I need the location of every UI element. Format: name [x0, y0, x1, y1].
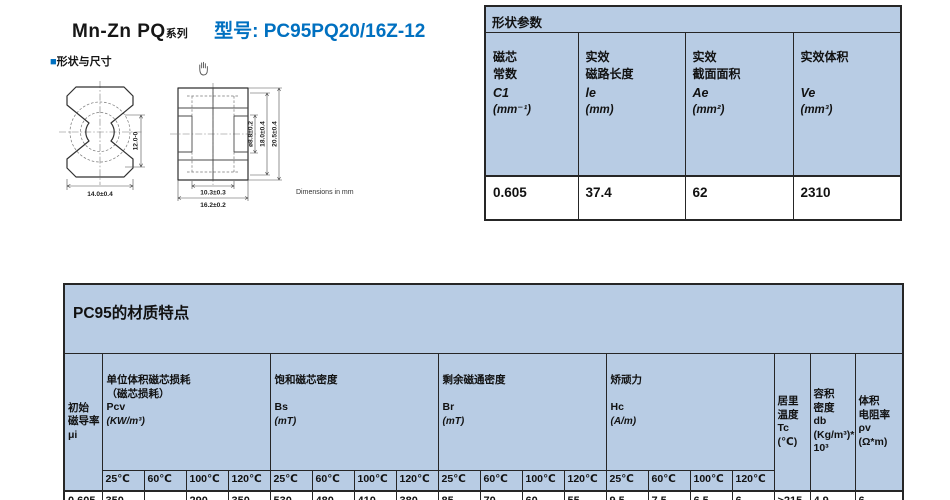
value-cell-ve: 2310 [793, 176, 901, 220]
temp-header-cell: 120℃ [396, 471, 438, 492]
material-characteristics-table: PC95的材质特点 初始 磁导率 μi 单位体积磁芯损耗 （磁芯损耗） Pcv … [63, 283, 904, 500]
table-row: 0.605 37.4 62 2310 [485, 176, 901, 220]
side-dim-hole-label: ø8.8±0.2 [248, 121, 255, 147]
value-cell: 350 [102, 491, 144, 500]
group-unit: (KW/m³) [107, 415, 270, 429]
datasheet-page: Mn-Zn PQ系列 型号: PC95PQ20/16Z-12 ■形状与尺寸 12… [0, 0, 950, 500]
value-cell: 410 [354, 491, 396, 500]
group-subname [611, 388, 774, 402]
param-unit: (mm⁻¹) [493, 102, 578, 118]
value-cell: 60 [522, 491, 564, 500]
side-dim-outer-width-label: 16.2±0.2 [200, 202, 226, 209]
value-cell-le: 37.4 [578, 176, 685, 220]
value-cell: 7.5 [648, 491, 690, 500]
table-row: 初始 磁导率 μi 单位体积磁芯损耗 （磁芯损耗） Pcv (KW/m³) 饱和… [64, 354, 903, 471]
temp-header-cell: 60℃ [144, 471, 186, 492]
value-cell-c1: 0.605 [485, 176, 578, 220]
grab-hand-icon [197, 61, 210, 76]
temp-header-cell: 120℃ [564, 471, 606, 492]
front-dim-height-label: 12.0-0 [133, 131, 140, 150]
blue-square-icon: ■ [50, 56, 57, 68]
table-row: 磁芯 常数 C1 (mm⁻¹) 实效 磁路长度 le (mm) 实效 截面面积 … [485, 33, 901, 177]
model-number: 型号: PC95PQ20/16Z-12 [214, 21, 425, 42]
side-dim-inner-width-label: 10.3±0.3 [200, 190, 226, 197]
group-unit: (mT) [275, 415, 438, 429]
value-cell: 9.5 [606, 491, 648, 500]
temp-header-cell: 25℃ [606, 471, 648, 492]
param-unit: (mm³) [801, 102, 901, 118]
param-symbol: Ve [801, 84, 901, 102]
header-cell-c1: 磁芯 常数 C1 (mm⁻¹) [485, 33, 578, 177]
shape-section-text: 形状与尺寸 [57, 56, 112, 68]
temp-header-cell: 60℃ [480, 471, 522, 492]
param-name: 磁芯 常数 [493, 49, 578, 83]
table-row: PC95的材质特点 [64, 284, 903, 354]
param-symbol: Ae [693, 84, 793, 102]
value-cell: 6 [732, 491, 774, 500]
value-cell: 350 [228, 491, 270, 500]
front-view: 12.0-0 14.0±0.4 [59, 81, 145, 198]
param-unit: (mm²) [693, 102, 793, 118]
header-cell-pv: 体积 电阻率 ρv (Ω*m) [855, 354, 903, 492]
temp-header-cell: 25℃ [270, 471, 312, 492]
header-group-br: 剩余磁通密度 Br (mT) [438, 354, 606, 471]
temp-header-cell: 120℃ [732, 471, 774, 492]
group-symbol: Pcv [107, 401, 270, 415]
param-name: 实效 磁路长度 [586, 49, 685, 83]
temp-header-cell: 100℃ [186, 471, 228, 492]
param-symbol: C1 [493, 84, 578, 102]
header-cell-tc: 居里 温度 Tc (℃) [774, 354, 810, 492]
group-subname [275, 388, 438, 402]
header-group-bs: 饱和磁芯密度 Bs (mT) [270, 354, 438, 471]
table-row: 形状参数 [485, 6, 901, 33]
header-cell-ve: 实效体积 Ve (mm³) [793, 33, 901, 177]
value-cell-pv: 6 [855, 491, 903, 500]
table-row: 0.605 350 290 350 530 480 410 380 85 70 … [64, 491, 903, 500]
group-subname [443, 388, 606, 402]
series-suffix: 系列 [166, 28, 188, 40]
param-unit: (mm) [586, 102, 685, 118]
group-unit: (mT) [443, 415, 606, 429]
group-symbol: Br [443, 401, 606, 415]
series-title: Mn-Zn PQ [72, 21, 166, 42]
temp-header-cell: 100℃ [690, 471, 732, 492]
material-table-title: PC95的材质特点 [64, 284, 903, 354]
header-cell-ae: 实效 截面面积 Ae (mm²) [685, 33, 793, 177]
value-cell: 6.5 [690, 491, 732, 500]
page-header: Mn-Zn PQ系列 型号: PC95PQ20/16Z-12 [72, 16, 425, 43]
group-symbol: Hc [611, 401, 774, 415]
value-cell: 85 [438, 491, 480, 500]
header-cell-db: 容积 密度 db (Kg/m³)*10³ [810, 354, 855, 492]
value-cell: 380 [396, 491, 438, 500]
side-dim-inner-label: 18.0±0.4 [260, 121, 267, 147]
temp-header-cell: 25℃ [102, 471, 144, 492]
group-unit: (A/m) [611, 415, 774, 429]
value-cell-mu: 0.605 [64, 491, 102, 500]
header-group-pcv: 单位体积磁芯损耗 （磁芯损耗） Pcv (KW/m³) [102, 354, 270, 471]
dimensions-note: Dimensions in mm [296, 189, 354, 196]
shape-parameters-table: 形状参数 磁芯 常数 C1 (mm⁻¹) 实效 磁路长度 le (mm) 实效 … [484, 5, 902, 221]
shape-table-title: 形状参数 [485, 6, 901, 33]
value-cell: 290 [186, 491, 228, 500]
param-name: 实效 截面面积 [693, 49, 793, 83]
header-cell-mu: 初始 磁导率 μi [64, 354, 102, 492]
shape-section-label: ■形状与尺寸 [50, 53, 112, 69]
param-symbol: le [586, 84, 685, 102]
group-symbol: Bs [275, 401, 438, 415]
header-group-hc: 矫顽力 Hc (A/m) [606, 354, 774, 471]
group-name: 单位体积磁芯损耗 [107, 374, 270, 388]
value-cell: 480 [312, 491, 354, 500]
value-cell: 55 [564, 491, 606, 500]
front-dim-width-label: 14.0±0.4 [87, 191, 113, 198]
param-name: 实效体积 [801, 49, 901, 83]
header-cell-le: 实效 磁路长度 le (mm) [578, 33, 685, 177]
group-name: 剩余磁通密度 [443, 374, 606, 388]
value-cell: 70 [480, 491, 522, 500]
group-name: 饱和磁芯密度 [275, 374, 438, 388]
value-cell-ae: 62 [685, 176, 793, 220]
value-cell [144, 491, 186, 500]
temp-header-cell: 100℃ [354, 471, 396, 492]
side-view: ø8.8±0.2 18.0±0.4 20.5±0.4 10.3±0.3 16.2… [170, 83, 282, 209]
value-cell-db: 4.9 [810, 491, 855, 500]
value-cell-tc: >215 [774, 491, 810, 500]
temp-header-cell: 100℃ [522, 471, 564, 492]
group-name: 矫顽力 [611, 374, 774, 388]
value-cell: 530 [270, 491, 312, 500]
temp-header-cell: 120℃ [228, 471, 270, 492]
temp-header-cell: 60℃ [648, 471, 690, 492]
group-subname: （磁芯损耗） [107, 388, 270, 402]
temp-header-cell: 60℃ [312, 471, 354, 492]
temp-header-cell: 25℃ [438, 471, 480, 492]
side-dim-outer-label: 20.5±0.4 [272, 121, 279, 147]
